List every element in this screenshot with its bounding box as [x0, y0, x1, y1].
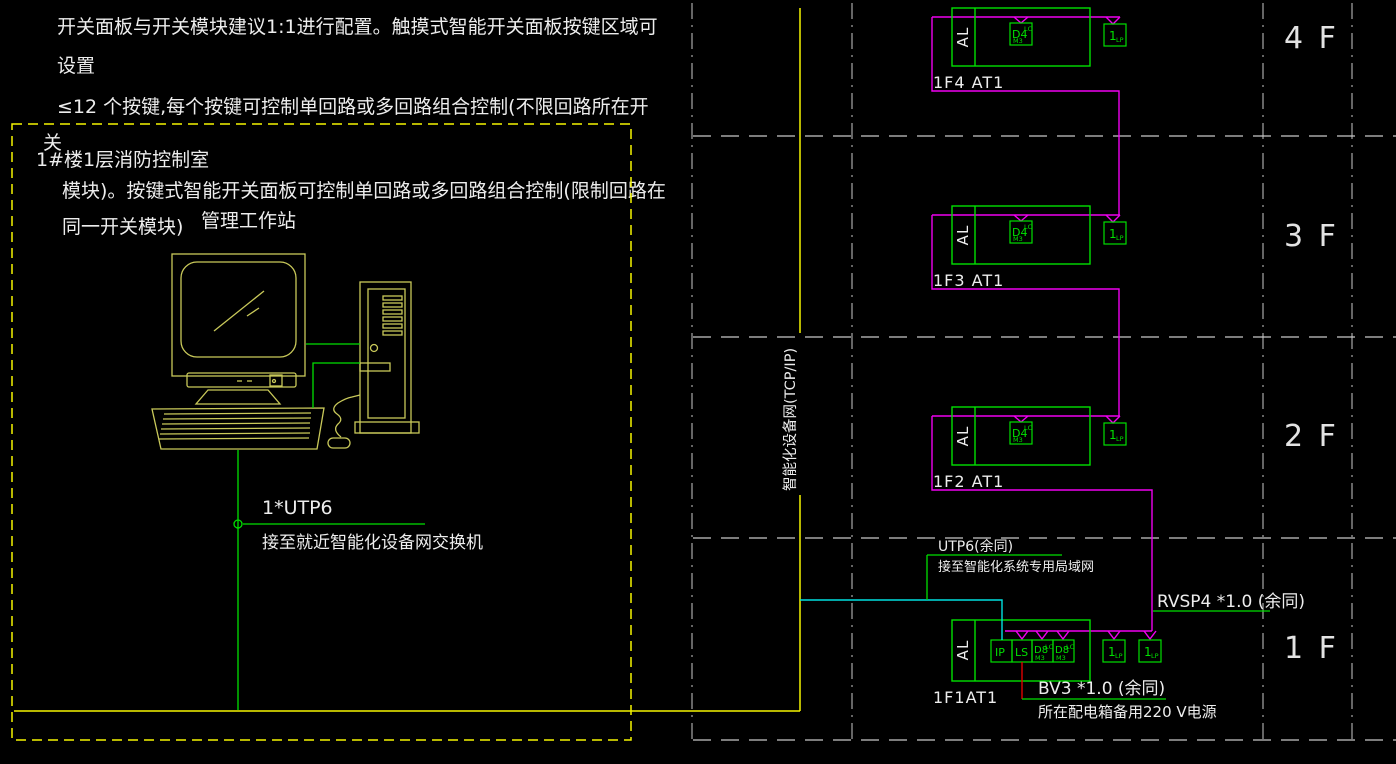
dimmer-module-sub2: M3	[1013, 37, 1023, 45]
bus-arrow-ls	[1016, 631, 1028, 639]
screen-glare-line	[247, 308, 259, 316]
switch-panel-sub: LP	[1115, 652, 1123, 660]
bv3-power-label: BV3 *1.0 (余同)	[1038, 679, 1165, 699]
note-line-5: 模块)。按键式智能开关面板可控制单回路或多回路组合控制(限制回路在	[62, 180, 666, 202]
panel-circuit-label-1f: 1F1AT1	[933, 688, 998, 707]
workstation-label: 管理工作站	[201, 210, 296, 232]
tower-cable	[313, 363, 360, 408]
bus-arrow-into-panel	[1106, 215, 1120, 222]
bus-arrow-panel-2	[1144, 631, 1156, 639]
tower-vent	[383, 310, 402, 314]
tower-power-button	[371, 345, 378, 352]
relay-module-sub2: M3	[1035, 654, 1045, 662]
utp6-bus-note: 接至智能化系统专用局域网	[938, 559, 1094, 575]
bus-arrow-into-panel	[1106, 416, 1120, 423]
tower-vent	[383, 331, 402, 335]
relay-module-sub2: M3	[1056, 654, 1066, 662]
configuration-notes: 开关面板与开关模块建议1:1进行配置。触摸式智能开关面板按键区域可 设置 ≤12…	[43, 16, 666, 238]
monitor	[172, 254, 305, 376]
monitor-screen	[181, 262, 296, 357]
magenta-bus-1f	[1005, 631, 1156, 639]
utp6-cable-label: 1*UTP6	[262, 497, 333, 519]
mouse-cable	[334, 395, 360, 437]
bus-arrow-d8b	[1057, 631, 1069, 639]
floor-name-1f: 1 F	[1284, 631, 1339, 666]
relay-module-sub: LC	[1066, 643, 1075, 651]
workstation-network-cables	[234, 344, 425, 710]
keyboard-key-row	[164, 413, 311, 414]
dimmer-module-sub: LC	[1024, 424, 1033, 432]
note-line-3: ≤12 个按键,每个按键可控制单回路或多回路组合控制(不限回路所在开	[57, 96, 649, 118]
tower-vent	[383, 296, 402, 300]
dimmer-module-sub: LC	[1024, 25, 1033, 33]
label-underlines	[927, 555, 1270, 699]
bus-arrow-d8a	[1036, 631, 1048, 639]
ip-module-label: IP	[995, 646, 1005, 659]
panel-circuit-label-3f: 1F3 AT1	[933, 271, 1004, 290]
bus-riser-to-1f	[932, 416, 1152, 631]
mouse	[328, 438, 350, 448]
tower-vent	[383, 324, 402, 328]
tower-base	[355, 422, 419, 433]
control-room-title: 1#楼1层消防控制室	[36, 149, 209, 171]
utp6-bus-label: UTP6(余同)	[938, 538, 1013, 555]
al-label-4f: AL	[954, 27, 972, 48]
switch-panel-sub: LP	[1151, 652, 1159, 660]
tower-front-panel	[368, 289, 405, 418]
rvsp4-bus-label: RVSP4 *1.0 (余同)	[1157, 592, 1305, 612]
keyboard-key-row	[159, 438, 309, 439]
al-label-2f: AL	[954, 426, 972, 447]
switch-panel-sub: LP	[1116, 435, 1124, 443]
keyboard-key-row	[160, 433, 310, 434]
dimmer-module-sub2: M3	[1013, 235, 1023, 243]
bus-arrow-into-module	[1014, 215, 1028, 221]
riser-label: 智能化设备网(TCP/IP)	[782, 348, 799, 491]
monitor-stand	[196, 390, 280, 404]
bus-arrow-into-module	[1014, 17, 1028, 23]
note-line-6: 同一开关模块)	[62, 216, 183, 238]
bus-arrow-panel-1	[1108, 631, 1120, 639]
floor-name-3f: 3 F	[1284, 219, 1339, 254]
monitor-power-led	[273, 380, 276, 383]
floor-name-2f: 2 F	[1284, 419, 1339, 454]
floor-unit-4f: AL D4 LC M3 1 LP 1F4 AT1	[932, 8, 1126, 215]
switch-panel-sub: LP	[1116, 234, 1124, 242]
note-line-1: 开关面板与开关模块建议1:1进行配置。触摸式智能开关面板按键区域可	[57, 16, 658, 38]
keyboard-key-row	[163, 418, 311, 419]
tower-vent	[383, 317, 402, 321]
bus-arrow-into-panel	[1106, 17, 1120, 24]
bv3-power-note: 所在配电箱备用220 V电源	[1038, 703, 1217, 721]
screen-glare-line	[214, 291, 264, 331]
floor-unit-2f: AL D4 LC M3 1 LP 1F2 AT1	[932, 407, 1152, 631]
tower-vent	[383, 303, 402, 307]
al-label-1f: AL	[954, 640, 972, 661]
workstation-drawing	[152, 254, 419, 449]
tower-drive-bay	[360, 363, 390, 371]
ls-module-label: LS	[1015, 646, 1028, 659]
keyboard-key-row	[162, 423, 310, 424]
bus-arrow-into-module	[1014, 416, 1028, 422]
panel-circuit-label-2f: 1F2 AT1	[933, 472, 1004, 491]
note-line-2: 设置	[57, 55, 95, 77]
utp6-cable-note: 接至就近智能化设备网交换机	[262, 533, 483, 553]
al-label-3f: AL	[954, 225, 972, 246]
relay-module-sub: LC	[1045, 643, 1054, 651]
switch-panel-sub: LP	[1116, 36, 1124, 44]
floor-unit-3f: AL D4 LC M3 1 LP 1F3 AT1	[932, 206, 1126, 416]
panel-circuit-label-4f: 1F4 AT1	[933, 73, 1004, 92]
keyboard-key-row	[161, 428, 310, 429]
dimmer-module-sub: LC	[1024, 223, 1033, 231]
magenta-bus-2f	[932, 416, 1152, 631]
dimmer-module-sub2: M3	[1013, 436, 1023, 444]
floor-name-4f: 4 F	[1284, 21, 1339, 56]
cad-canvas: 开关面板与开关模块建议1:1进行配置。触摸式智能开关面板按键区域可 设置 ≤12…	[0, 0, 1396, 764]
